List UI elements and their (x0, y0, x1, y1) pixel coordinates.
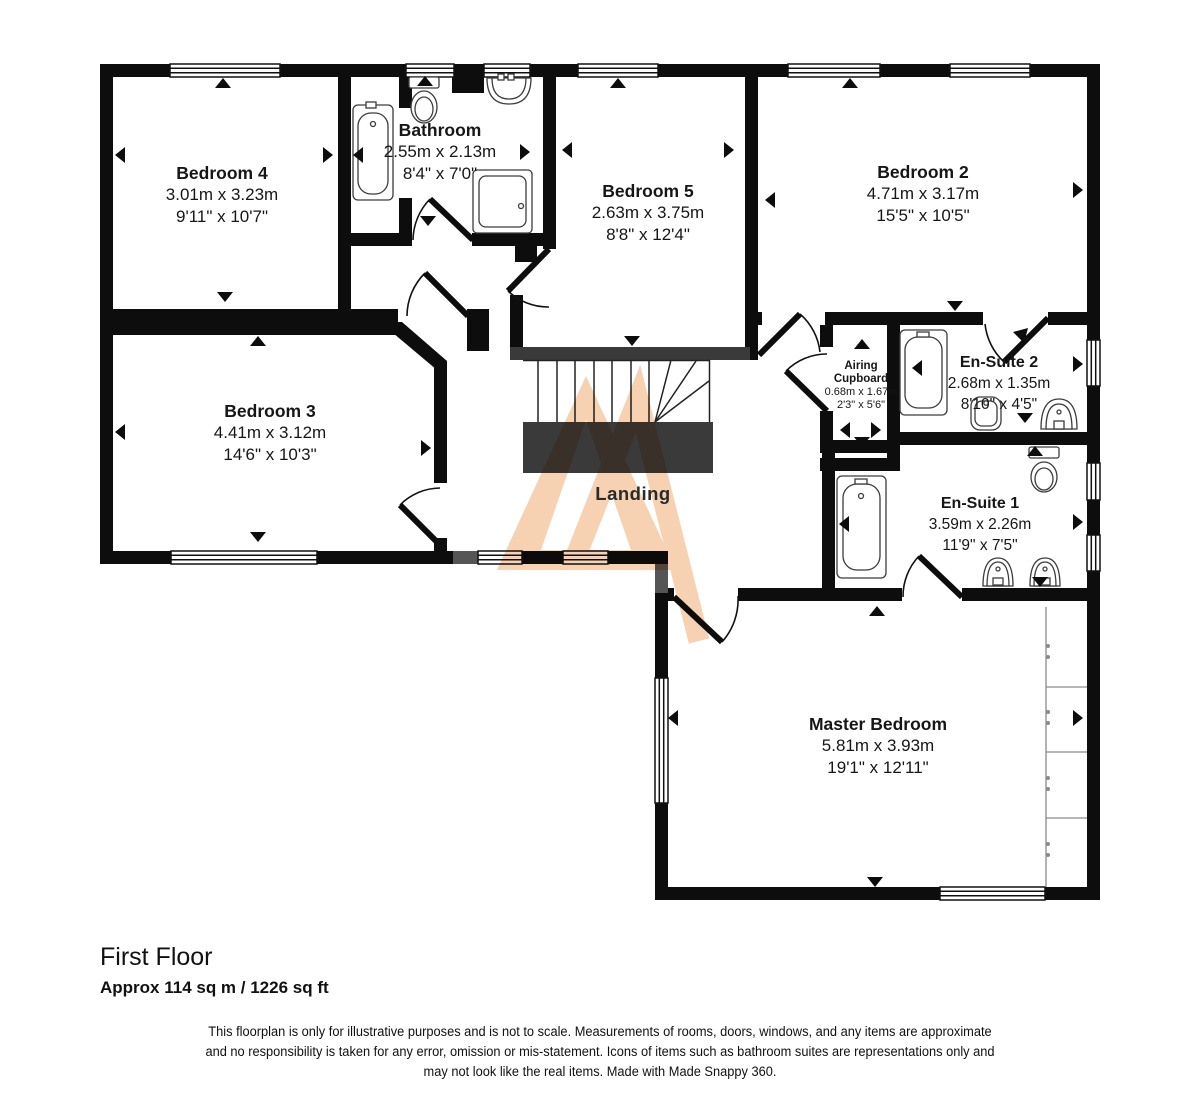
arrow-right-icon (1073, 710, 1083, 726)
room-dim-imperial: 11'9" x 7'5" (929, 535, 1032, 556)
arrow-down-icon (624, 336, 640, 346)
arrow-down-icon (867, 877, 883, 887)
arrow-right-icon (520, 144, 530, 160)
arrow-up-icon (854, 339, 870, 349)
room-label-airing-cupboard: Airing Cupboard 0.68m x 1.67m 2'3" x 5'6… (822, 360, 900, 412)
room-dim-metric: 3.59m x 2.26m (929, 514, 1032, 535)
room-dim-imperial: 2'3" x 5'6" (822, 399, 900, 412)
disclaimer-line-2: and no responsibility is taken for any e… (30, 1042, 1170, 1062)
window (170, 64, 280, 77)
room-label-landing: Landing (595, 483, 670, 505)
room-dim-imperial: 8'10" x 4'5" (948, 394, 1051, 415)
window (788, 64, 880, 77)
arrow-left-icon (668, 710, 678, 726)
room-dim-imperial: 14'6" x 10'3" (214, 444, 326, 466)
room-label-master-bedroom: Master Bedroom 5.81m x 3.93m 19'1" x 12'… (809, 713, 947, 779)
door-arcs (400, 199, 1004, 642)
door-leaves (400, 199, 1048, 642)
window (1087, 340, 1100, 386)
window (578, 64, 658, 77)
arrow-right-icon (724, 142, 734, 158)
room-dim-metric: 0.68m x 1.67m (822, 386, 900, 399)
arrow-left-icon (115, 147, 125, 163)
doors (400, 199, 1048, 642)
stair-treads (523, 360, 710, 422)
arrow-right-icon (871, 422, 881, 438)
room-dim-imperial: 8'8" x 12'4" (592, 224, 704, 246)
floor-title: First Floor (100, 943, 213, 972)
window (406, 64, 454, 77)
window (171, 551, 317, 564)
arrow-down-icon (420, 216, 436, 226)
sink-icon (487, 74, 531, 104)
room-name: En-Suite 1 (929, 493, 1032, 514)
arrow-right-icon (323, 147, 333, 163)
window (1087, 463, 1100, 500)
window (940, 887, 1045, 900)
room-dim-imperial: 9'11" x 10'7" (166, 206, 278, 228)
arrow-down-icon (947, 301, 963, 311)
room-label-bedroom5: Bedroom 5 2.63m x 3.75m 8'8" x 12'4" (592, 180, 704, 246)
room-dim-metric: 4.71m x 3.17m (867, 183, 979, 205)
arrow-right-icon (421, 440, 431, 456)
room-label-bathroom: Bathroom 2.55m x 2.13m 8'4" x 7'0" (384, 119, 496, 185)
room-name: Bedroom 4 (166, 162, 278, 184)
room-name: Bedroom 2 (867, 161, 979, 183)
room-dim-imperial: 19'1" x 12'11" (809, 757, 947, 779)
wardrobe (1046, 607, 1087, 887)
room-dim-metric: 2.55m x 2.13m (384, 141, 496, 163)
arrow-up-icon (869, 606, 885, 616)
arrow-left-icon (562, 142, 572, 158)
room-dim-imperial: 15'5" x 10'5" (867, 205, 979, 227)
room-name: Bedroom 5 (592, 180, 704, 202)
floorplan-page: Bedroom 4 3.01m x 3.23m 9'11" x 10'7" Ba… (0, 0, 1200, 1099)
room-name: Bedroom 3 (214, 400, 326, 422)
room-dim-metric: 5.81m x 3.93m (809, 735, 947, 757)
window (950, 64, 1030, 77)
arrow-up-icon (842, 78, 858, 88)
arrow-right-icon (1073, 182, 1083, 198)
window (655, 678, 668, 803)
room-name: Bathroom (384, 119, 496, 141)
room-name: En-Suite 2 (948, 352, 1051, 373)
room-dim-metric: 3.01m x 3.23m (166, 184, 278, 206)
room-name: Master Bedroom (809, 713, 947, 735)
window (484, 64, 530, 77)
arrow-up-icon (610, 78, 626, 88)
room-label-bedroom3: Bedroom 3 4.41m x 3.12m 14'6" x 10'3" (214, 400, 326, 466)
room-name: Airing Cupboard (822, 360, 900, 386)
disclaimer-line-1: This floorplan is only for illustrative … (30, 1022, 1170, 1042)
arrow-left-icon (115, 424, 125, 440)
window (1087, 535, 1100, 571)
room-dim-metric: 4.41m x 3.12m (214, 422, 326, 444)
room-label-bedroom2: Bedroom 2 4.71m x 3.17m 15'5" x 10'5" (867, 161, 979, 227)
disclaimer-text: This floorplan is only for illustrative … (30, 1022, 1170, 1082)
arrow-up-icon (215, 78, 231, 88)
arrow-left-icon (840, 422, 850, 438)
arrow-down-icon (217, 292, 233, 302)
room-dim-metric: 2.68m x 1.35m (948, 373, 1051, 394)
arrow-left-icon (765, 192, 775, 208)
arrow-down-icon (250, 532, 266, 542)
arrow-right-icon (1073, 514, 1083, 530)
sink-icon (983, 558, 1013, 586)
room-label-ensuite1: En-Suite 1 3.59m x 2.26m 11'9" x 7'5" (929, 493, 1032, 556)
arrow-up-icon (250, 336, 266, 346)
bath-icon (900, 330, 947, 415)
watermark-logo (497, 376, 699, 641)
disclaimer-line-3: may not look like the real items. Made w… (30, 1062, 1170, 1082)
arrow-right-icon (1073, 356, 1083, 372)
sink-icon (1030, 558, 1060, 586)
room-dim-imperial: 8'4" x 7'0" (384, 163, 496, 185)
room-label-ensuite2: En-Suite 2 2.68m x 1.35m 8'10" x 4'5" (948, 352, 1051, 415)
floor-area: Approx 114 sq m / 1226 sq ft (100, 978, 329, 998)
room-dim-metric: 2.63m x 3.75m (592, 202, 704, 224)
room-label-bedroom4: Bedroom 4 3.01m x 3.23m 9'11" x 10'7" (166, 162, 278, 228)
